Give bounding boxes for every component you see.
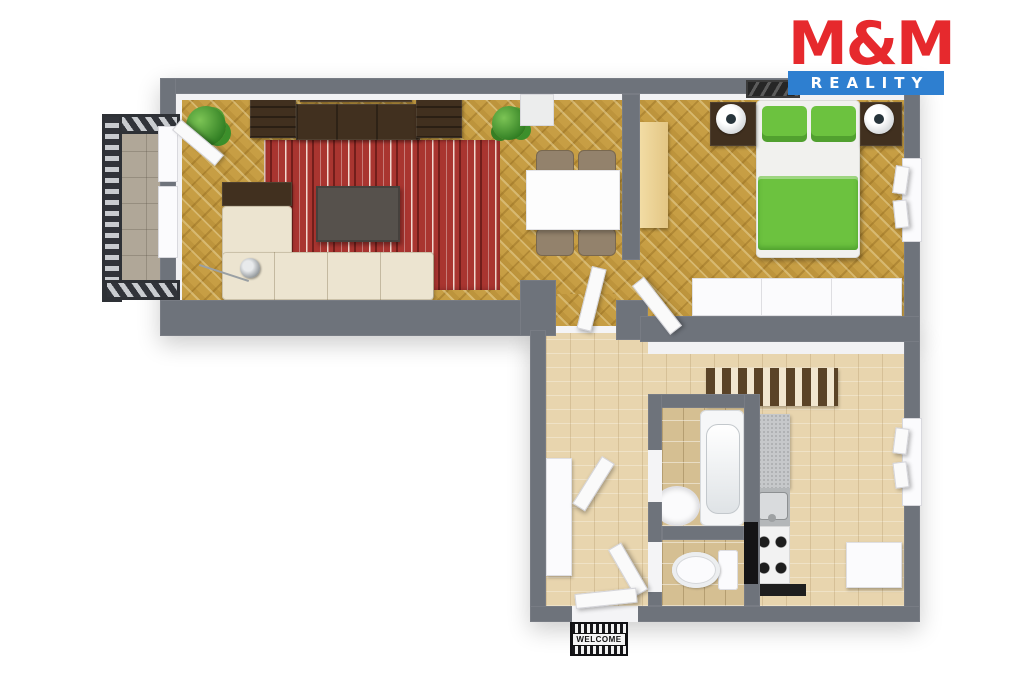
balcony-railing-left	[102, 114, 122, 302]
sofa-back-console	[222, 182, 292, 206]
nightstand-lamp-right	[864, 104, 894, 134]
bedroom-dresser	[692, 278, 902, 316]
kitchen-faucet	[768, 514, 776, 522]
toilet-tank	[718, 550, 738, 590]
bed-pillow-left	[762, 106, 807, 142]
balcony-door-frame	[158, 126, 178, 182]
bedroom-wardrobe	[640, 122, 668, 228]
lower-left-wall	[530, 330, 546, 622]
entry-doorway	[572, 606, 638, 622]
chimney-pillar	[520, 94, 554, 126]
brand-logo-text: M&M	[788, 16, 944, 73]
kitchen-window-sash-2	[892, 461, 909, 489]
wc-doorway	[648, 542, 662, 592]
bedroom-bottom-wall	[640, 316, 920, 342]
dining-wall-stub	[520, 280, 556, 336]
dining-table	[526, 170, 620, 230]
coffee-table	[316, 186, 400, 242]
bed-blanket	[758, 176, 858, 250]
kitchen-top-wall-face	[648, 342, 904, 354]
hallway-closet	[546, 458, 572, 576]
bedroom-window-sash-2	[893, 199, 910, 228]
floor-plan: WELCOME M&M REALITY	[0, 0, 1024, 683]
floor-lamp-shade	[240, 258, 260, 278]
living-bedroom-divider-wall	[622, 94, 640, 260]
bed-pillow-right	[811, 106, 856, 142]
kitchen-fridge	[846, 542, 902, 588]
welcome-doormat: WELCOME	[570, 622, 628, 656]
brand-logo-subtext: REALITY	[788, 71, 944, 95]
balcony-railing-bottom	[104, 280, 180, 300]
living-bottom-wall	[160, 300, 556, 336]
bathroom-doorway	[648, 450, 662, 502]
kitchen-tall-cabinet	[744, 522, 758, 584]
kitchen-plinth	[754, 584, 806, 596]
doormat-label: WELCOME	[572, 633, 625, 646]
bathtub-basin	[706, 424, 740, 514]
toilet-bowl	[672, 552, 720, 588]
nightstand-lamp-left	[716, 104, 746, 134]
balcony-window	[158, 186, 178, 258]
bathroom-wc-divider	[662, 526, 744, 540]
tv-media-console	[296, 104, 420, 140]
dining-chair-bottom-left	[536, 228, 574, 256]
dining-chair-bottom-right	[578, 228, 616, 256]
brand-logo: M&M REALITY	[788, 16, 944, 95]
